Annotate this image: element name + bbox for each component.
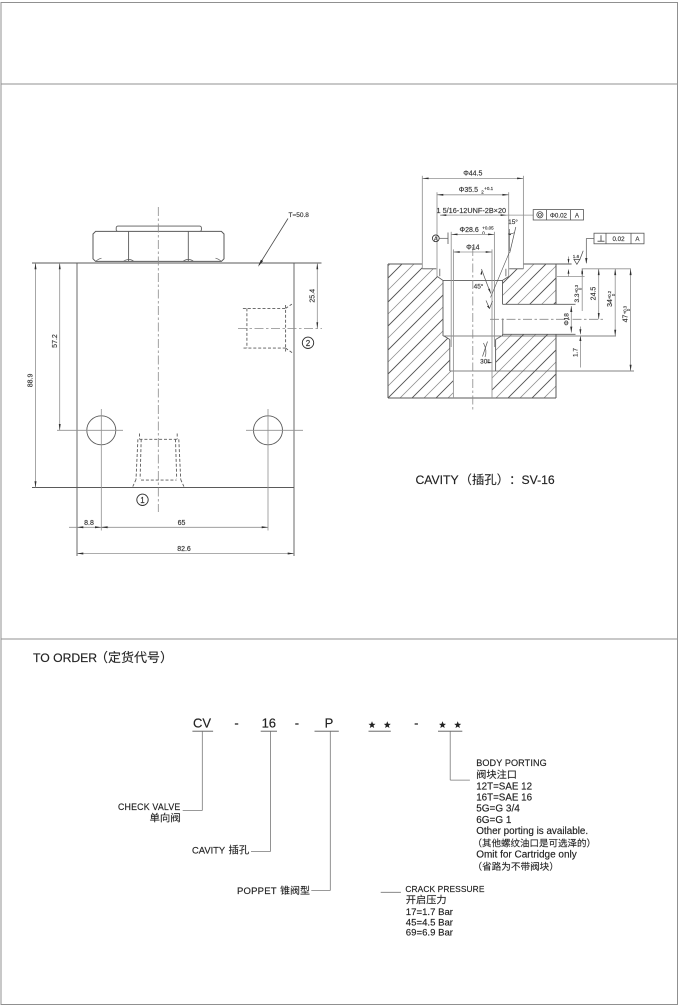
svg-text:+0.1: +0.1 [484,186,493,191]
svg-text:69=6.9 Bar: 69=6.9 Bar [406,928,454,939]
svg-text:8.8: 8.8 [84,520,94,527]
svg-text:45°: 45° [474,283,484,291]
svg-text:T=50.8: T=50.8 [289,212,310,219]
svg-text:TO ORDER: TO ORDER [33,651,97,665]
svg-text:SV-16: SV-16 [522,473,555,487]
svg-text:0: 0 [482,231,485,236]
svg-text:2: 2 [306,339,311,348]
svg-text:17=1.7 Bar: 17=1.7 Bar [406,907,454,918]
svg-text:15°: 15° [508,218,518,226]
svg-text:Φ35.5: Φ35.5 [459,187,478,194]
svg-text:25.4: 25.4 [310,289,317,303]
svg-text:-: - [234,716,238,731]
svg-text:1: 1 [140,496,145,505]
svg-text:CAVITY: CAVITY [416,473,459,487]
svg-text:Other porting is available.: Other porting is available. [476,826,588,837]
svg-text:16T=SAE 16: 16T=SAE 16 [476,793,532,804]
svg-text:1.6: 1.6 [573,254,580,259]
svg-text:Omit for Cartridge only: Omit for Cartridge only [476,850,577,861]
svg-text:30°: 30° [480,358,490,366]
svg-text:-: - [295,716,299,731]
svg-text:+0.05: +0.05 [482,226,494,231]
svg-text:-: - [414,716,418,731]
svg-text:CHECK VALVE: CHECK VALVE [118,802,181,812]
svg-text:Φ14: Φ14 [466,244,479,251]
svg-text:88.9: 88.9 [28,373,35,387]
svg-text:0.02: 0.02 [612,236,625,243]
svg-text:57.2: 57.2 [52,334,59,348]
svg-text:CV: CV [193,716,211,731]
svg-text:3.3: 3.3 [574,293,581,302]
svg-text:5G=G 3/4: 5G=G 3/4 [476,804,520,815]
svg-text:1 5/16-12UNF-2B×20: 1 5/16-12UNF-2B×20 [437,206,507,215]
svg-text:Φ18: Φ18 [563,313,570,326]
svg-text:A: A [434,237,438,243]
svg-text:6G=G 1: 6G=G 1 [476,815,512,826]
svg-text:34: 34 [607,299,614,307]
svg-text:1.7: 1.7 [572,348,579,357]
svg-text:POPPET: POPPET [237,886,277,897]
svg-text:82.6: 82.6 [177,546,191,553]
svg-text:16: 16 [262,716,276,731]
svg-text:45=4.5 Bar: 45=4.5 Bar [406,917,454,928]
svg-text:24.5: 24.5 [591,287,598,301]
svg-text:CAVITY: CAVITY [192,845,226,856]
svg-text:Φ28.6: Φ28.6 [460,227,479,234]
svg-text:47: 47 [623,315,630,323]
svg-text:CRACK PRESSURE: CRACK PRESSURE [405,884,484,894]
svg-text:Φ0.02: Φ0.02 [550,212,568,219]
svg-text:P: P [325,716,334,731]
svg-text:12T=SAE 12: 12T=SAE 12 [476,781,532,792]
svg-text:Φ44.5: Φ44.5 [463,171,482,178]
svg-text:BODY PORTING: BODY PORTING [476,758,547,768]
svg-text:65: 65 [178,520,186,527]
